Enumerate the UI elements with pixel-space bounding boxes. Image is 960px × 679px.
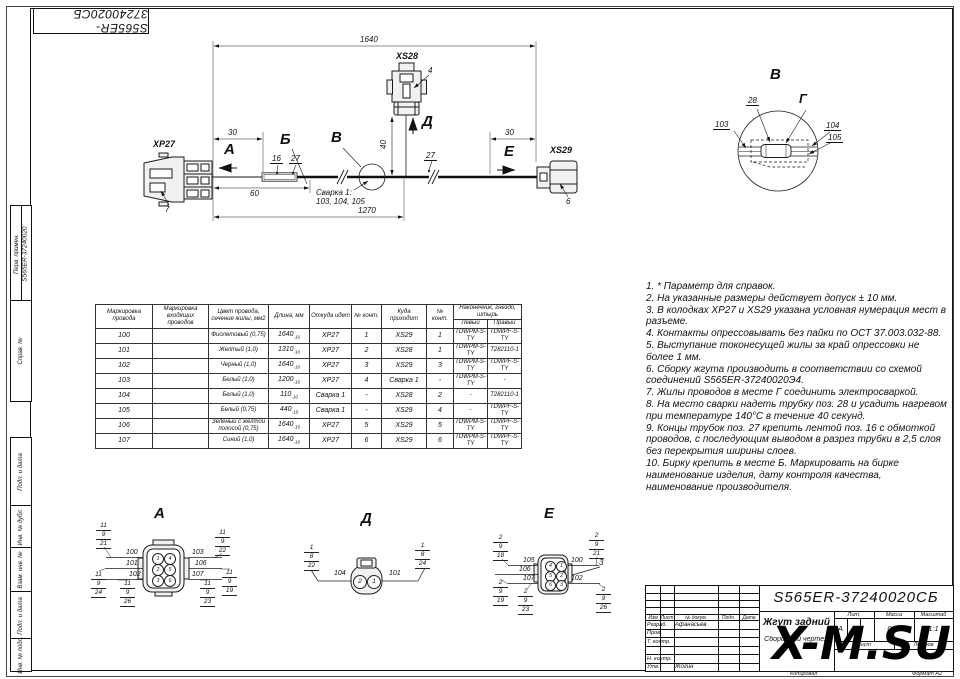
cell-marking: 102 (96, 358, 153, 373)
cell-length: 1640-10 (269, 433, 310, 448)
cell-incoming (153, 418, 209, 433)
cell-to: XS29 (382, 418, 427, 433)
view-e-pin-3: 3 (556, 580, 567, 591)
tb-col-list: Лист (660, 615, 674, 621)
wire-label-105: 105 (826, 133, 843, 143)
cell-color: Синий (1,0) (209, 433, 269, 448)
cell-from: XP27 (310, 343, 352, 358)
cell-length: 440-10 (269, 403, 310, 418)
pos-number-28: 28 (746, 96, 759, 106)
view-a-stack-bl: 11924 (91, 571, 106, 598)
cell-terminal-right: TDWPF-S-TY (488, 433, 522, 448)
cell-color: Фиолетовый (0,75) (209, 328, 269, 343)
col-header-contact2: № конт. (427, 305, 454, 329)
view-a-stack-bmr: 11923 (200, 580, 215, 607)
pos-number-27a: 27 (289, 154, 302, 164)
view-a-wire-102: 102 (129, 571, 141, 578)
cell-contact2: 1 (427, 328, 454, 343)
cell-marking: 107 (96, 433, 153, 448)
view-d-stack-right: 1824 (415, 542, 430, 569)
view-e-wire-106: 106 (519, 566, 531, 573)
cell-contact2: 6 (427, 433, 454, 448)
pos-number-4: 4 (428, 66, 432, 75)
view-e-stack-br: 2926 (596, 586, 611, 613)
wiring-table: Маркировка провода Маркировка входящих п… (95, 304, 522, 449)
note-item: 2. На указанные размеры действует допуск… (646, 293, 949, 305)
cell-from: XP27 (310, 328, 352, 343)
view-e-stack-bm: 2923 (518, 588, 533, 615)
detail-v-title: В (770, 66, 781, 83)
pos-number-16: 16 (270, 154, 283, 164)
cell-contact1: 6 (352, 433, 382, 448)
view-a-pin-3: 3 (152, 575, 164, 587)
col-header-color: Цвет провода, сечение жилы, мм2 (209, 305, 269, 329)
cell-terminal-right: - (488, 373, 522, 388)
cell-terminal-right: TDWPF-S-TY (488, 403, 522, 418)
note-item: 4. Контакты опрессовывать без пайки по О… (646, 328, 949, 340)
note-item: 7. Жилы проводов в месте Г соединить эле… (646, 387, 949, 399)
col-header-from: Откуда идет (310, 305, 352, 329)
cell-color: Белый (1,0) (209, 388, 269, 403)
cell-marking: 104 (96, 388, 153, 403)
wire-label-104: 104 (824, 121, 841, 131)
col-header-length: Длина, мм (269, 305, 310, 329)
cell-marking: 105 (96, 403, 153, 418)
view-a-stack-tl: 11921 (96, 522, 111, 549)
pos-number-6: 6 (566, 197, 570, 206)
cell-terminal-right: TDWPF-S-TY (488, 418, 522, 433)
cell-terminal-left: TDWPM-S-TY (454, 343, 488, 358)
view-a-stack-bml: 11926 (120, 580, 135, 607)
cell-contact2: 1 (427, 343, 454, 358)
tb-document-code: S565ER-37240020СБ (759, 589, 953, 606)
view-a-title: А (154, 505, 165, 522)
view-d-pin-2: 2 (353, 575, 367, 589)
cell-to: Сварка 1 (382, 373, 427, 388)
cell-contact1: 3 (352, 358, 382, 373)
cell-to: XS29 (382, 403, 427, 418)
pos-number-7: 7 (165, 205, 169, 214)
table-row: 107 Синий (1,0) 1640-10 XP27 6 XS29 6 TD… (96, 433, 522, 448)
wire-label-103: 103 (713, 120, 730, 130)
side-box-inv-dubl: Инв. № дубл. (10, 505, 32, 549)
top-stamp-code: S565ER-37240020СБ (34, 7, 148, 35)
tb-prov-label: Пров. (647, 630, 674, 636)
dim-1640: 1640 (360, 35, 378, 44)
cell-to: XS29 (382, 328, 427, 343)
cell-terminal-right: TDWPF-S-TY (488, 358, 522, 373)
tb-utv-label: Утв. (647, 664, 674, 670)
cell-incoming (153, 388, 209, 403)
side-box-perv-primen: Перв. примен. S565ER-37240020 (10, 205, 32, 302)
cell-contact2: 5 (427, 418, 454, 433)
drawing-sheet: S565ER-37240020СБ Перв. примен. S565ER-3… (0, 0, 960, 679)
col-header-terminal: Наконечник, гнездо, штырь (454, 305, 522, 320)
col-header-incoming: Маркировка входящих проводов (153, 305, 209, 329)
detail-v-g-marker: Г (799, 91, 807, 106)
side-label-sprav: Справ. № (18, 337, 24, 364)
view-a-wire-103: 103 (192, 549, 204, 556)
weld-note-line1: Сварка 1: (316, 188, 352, 197)
view-marker-v: В (331, 129, 342, 146)
table-header-row: Маркировка провода Маркировка входящих п… (96, 305, 522, 320)
view-e-wire-105: 105 (523, 557, 535, 564)
cell-contact1: 4 (352, 373, 382, 388)
dim-30-right: 30 (505, 128, 514, 137)
view-marker-d: Д (422, 113, 433, 130)
cell-length: 1200-10 (269, 373, 310, 388)
dim-40: 40 (379, 140, 388, 149)
tb-col-doc: № докум. (674, 615, 718, 621)
tb-nkontr-label: Н. контр. (647, 656, 674, 662)
view-a-pin-6: 6 (164, 575, 176, 587)
connector-label-xs28: XS28 (396, 51, 418, 61)
cell-color: Белый (1,0) (209, 373, 269, 388)
cell-incoming (153, 343, 209, 358)
side-label-podp1: Подп. и дата (18, 453, 24, 491)
cell-color: Черный (1,0) (209, 358, 269, 373)
cell-to: XS29 (382, 433, 427, 448)
cell-terminal-right: T282110-1 (488, 388, 522, 403)
technical-notes: 1. * Параметр для справок.2. На указанны… (646, 281, 949, 493)
view-a-stack-tr: 11922 (215, 529, 230, 556)
cell-terminal-right: TDWPF-S-TY (488, 328, 522, 343)
side-label-inv-dubl: Инв. № дубл. (18, 509, 24, 546)
cell-from: Сварка 1 (310, 388, 352, 403)
note-item: 8. На место сварки надеть трубку поз. 28… (646, 399, 949, 423)
cell-terminal-left: TDWPM-S-TY (454, 328, 488, 343)
cell-terminal-left: - (454, 388, 488, 403)
view-marker-b: Б (280, 131, 291, 148)
cell-terminal-left: TDWPM-S-TY (454, 418, 488, 433)
view-d-wire-104: 104 (334, 570, 346, 577)
view-a-stack-br: 11919 (222, 569, 237, 596)
cell-from: XP27 (310, 373, 352, 388)
cell-to: XS29 (382, 358, 427, 373)
note-item: 9. Концы трубок поз. 27 крепить лентой п… (646, 423, 949, 458)
view-d-stack-left: 1822 (304, 544, 319, 571)
view-e-wire-100: 100 (571, 557, 583, 564)
view-d-title: Д (361, 510, 372, 527)
note-item: 1. * Параметр для справок. (646, 281, 949, 293)
dim-60: 60 (250, 189, 259, 198)
cell-contact1: - (352, 388, 382, 403)
cell-to: XS28 (382, 388, 427, 403)
weld-note-line2: 103, 104, 105 (316, 197, 365, 206)
cell-marking: 103 (96, 373, 153, 388)
cell-from: XP27 (310, 358, 352, 373)
col-header-contact1: № конт. (352, 305, 382, 329)
dim-1270: 1270 (358, 206, 376, 215)
cell-terminal-left: TDWPM-S-TY (454, 373, 488, 388)
cell-marking: 101 (96, 343, 153, 358)
col-header-left: Левый (454, 320, 488, 328)
cell-contact2: 4 (427, 403, 454, 418)
cell-length: 1310-10 (269, 343, 310, 358)
cell-terminal-left: - (454, 403, 488, 418)
cell-contact2: 2 (427, 388, 454, 403)
tb-utv-name: Жогин (675, 664, 718, 670)
view-e-pos-3: 3 (599, 558, 603, 567)
cell-incoming (153, 358, 209, 373)
cell-incoming (153, 403, 209, 418)
top-stamp-box: S565ER-37240020СБ (33, 8, 149, 34)
cell-from: XP27 (310, 418, 352, 433)
view-d-pin-1: 1 (367, 575, 381, 589)
dim-30-left: 30 (228, 128, 237, 137)
cell-length: 1640-10 (269, 358, 310, 373)
view-marker-a: А (224, 141, 235, 158)
cell-terminal-left: TDWPM-S-TY (454, 358, 488, 373)
view-d-wire-101: 101 (389, 570, 401, 577)
cell-contact1: 1 (352, 328, 382, 343)
cell-incoming (153, 328, 209, 343)
cell-color: Белый (0,75) (209, 403, 269, 418)
cell-terminal-left: TDWPM-S-TY (454, 433, 488, 448)
table-row: 101 Желтый (1,0) 1310-10 XP27 2 XS28 1 T… (96, 343, 522, 358)
format-label: Формат А2 (912, 671, 942, 677)
connector-label-xs29: XS29 (550, 145, 572, 155)
cell-length: 1640-10 (269, 328, 310, 343)
view-e-stack-tr: 2921 (589, 532, 604, 559)
col-header-marking: Маркировка провода (96, 305, 153, 329)
tb-razrab-name: Афанасьев (675, 622, 718, 628)
note-item: 3. В колодках ХР27 и XS29 указана условн… (646, 305, 949, 329)
cell-incoming (153, 433, 209, 448)
table-row: 106 Зеленый с желтой полосой (0,75) 1640… (96, 418, 522, 433)
cell-from: XP27 (310, 433, 352, 448)
note-item: 5. Выступание токонесущей жилы за край о… (646, 340, 949, 364)
pos-number-27b: 27 (424, 151, 437, 161)
cell-length: 110-10 (269, 388, 310, 403)
side-box-podp1: Подп. и дата (10, 437, 32, 507)
side-label-podp2: Подп. и дата (18, 597, 24, 635)
col-header-to: Куда приходит (382, 305, 427, 329)
table-row: 105 Белый (0,75) 440-10 Сварка 1 - XS29 … (96, 403, 522, 418)
connector-label-xp27: XP27 (153, 139, 175, 149)
copied-label: Копировал (790, 671, 817, 677)
view-marker-e: Е (504, 143, 514, 160)
cell-contact2: 3 (427, 358, 454, 373)
side-label-inv-podl: Инв. № подл. (18, 636, 24, 673)
view-a-wire-106: 106 (195, 560, 207, 567)
cell-marking: 106 (96, 418, 153, 433)
cell-contact1: 2 (352, 343, 382, 358)
tb-col-izm: Изм (646, 615, 660, 621)
col-header-right: Правый (488, 320, 522, 328)
table-row: 102 Черный (1,0) 1640-10 XP27 3 XS29 3 T… (96, 358, 522, 373)
cell-color: Желтый (1,0) (209, 343, 269, 358)
table-row: 103 Белый (1,0) 1200-10 XP27 4 Сварка 1 … (96, 373, 522, 388)
side-label-vzam: Взам. инв. № (18, 551, 24, 588)
cell-terminal-right: T282110-1 (488, 343, 522, 358)
view-a-wire-101: 101 (126, 560, 138, 567)
table-row: 104 Белый (1,0) 110-10 Сварка 1 - XS28 2… (96, 388, 522, 403)
watermark: X-M.SU (772, 621, 951, 666)
table-row: 100 Фиолетовый (0,75) 1640-10 XP27 1 XS2… (96, 328, 522, 343)
side-box-sprav: Справ. № (10, 300, 32, 402)
view-e-stack-bl: 2919 (493, 579, 508, 606)
cell-marking: 100 (96, 328, 153, 343)
note-item: 10. Бирку крепить в месте Б. Маркировать… (646, 458, 949, 493)
side-label-perv: Перв. примен. (14, 234, 20, 274)
cell-contact1: - (352, 403, 382, 418)
tb-col-podp: Подп. (718, 615, 739, 621)
view-e-wire-107: 107 (523, 575, 535, 582)
side-value-perv: S565ER-37240020 (22, 226, 29, 281)
tb-tkontr-label: Т. контр. (647, 639, 674, 645)
side-box-podp2: Подп. и дата (10, 591, 32, 640)
view-e-wire-102: 102 (571, 575, 583, 582)
view-e-title: Е (544, 505, 554, 522)
cell-color: Зеленый с желтой полосой (0,75) (209, 418, 269, 433)
cell-from: Сварка 1 (310, 403, 352, 418)
tb-col-data: Дата (739, 615, 759, 621)
view-a-wire-100: 100 (126, 549, 138, 556)
cell-to: XS28 (382, 343, 427, 358)
cell-contact1: 5 (352, 418, 382, 433)
view-a-wire-107: 107 (192, 571, 204, 578)
view-e-pin-6: 6 (545, 580, 556, 591)
cell-length: 1640-10 (269, 418, 310, 433)
note-item: 6. Сборку жгута производить в соответств… (646, 364, 949, 388)
side-box-inv-podl: Инв. № подл. (10, 638, 32, 672)
tb-razrab-label: Разраб. (647, 622, 674, 628)
side-box-vzam: Взам. инв. № (10, 547, 32, 593)
cell-incoming (153, 373, 209, 388)
cell-contact2: - (427, 373, 454, 388)
view-e-stack-tl: 2918 (493, 534, 508, 561)
